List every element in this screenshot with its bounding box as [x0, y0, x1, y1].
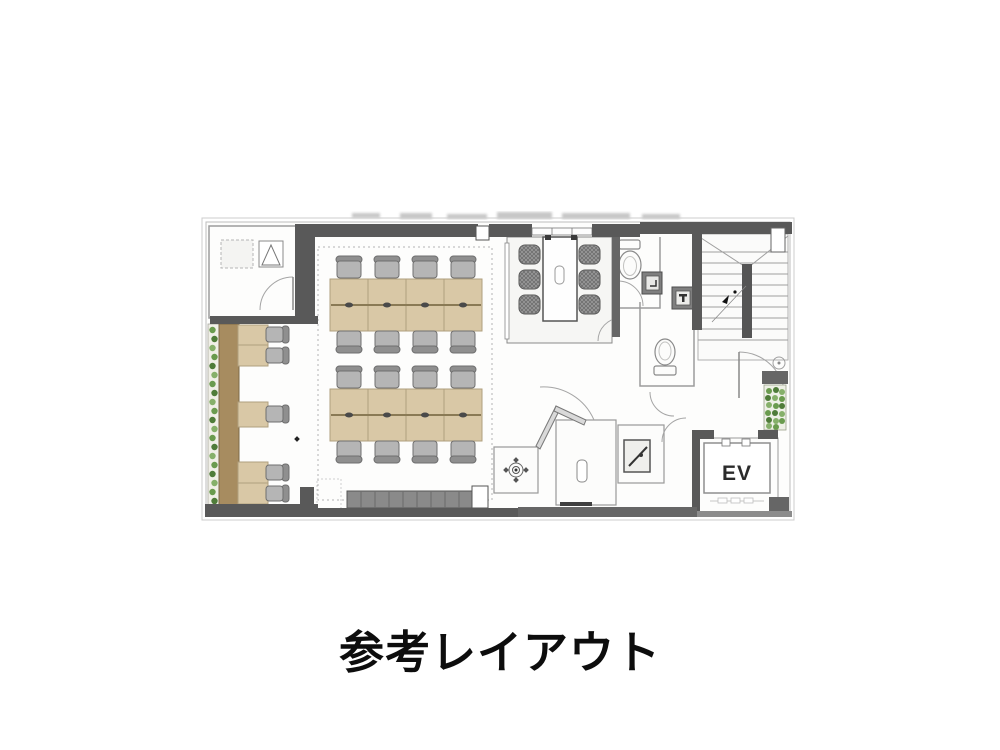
counter-desk [238, 325, 289, 345]
office-chair [412, 441, 438, 463]
office-chair [450, 441, 476, 463]
shower-room [556, 420, 616, 506]
meeting-chair [519, 245, 540, 264]
counter-desk [238, 462, 289, 483]
toilet-icon [655, 339, 675, 365]
threshold [560, 502, 592, 506]
storage-area [221, 240, 253, 268]
utility-room [618, 425, 664, 483]
office-chair [450, 366, 476, 388]
glass-front [532, 228, 592, 235]
column [476, 226, 489, 240]
counter-desk [238, 345, 289, 366]
stair-stringer [742, 264, 752, 338]
planter-strip-left [208, 324, 219, 514]
office-chair [336, 441, 362, 463]
toilet-tank [654, 366, 676, 375]
glass-wall [505, 243, 509, 339]
meeting-chair [579, 245, 600, 264]
water-heater [672, 287, 694, 309]
office-chair [450, 256, 476, 278]
washbasin [642, 272, 662, 294]
column [771, 228, 785, 252]
meeting-chair [579, 295, 600, 314]
counter-desk [238, 483, 289, 504]
bench-lockers [347, 491, 473, 508]
office-chair [336, 331, 362, 353]
screenshot-root: EV [0, 0, 1000, 750]
ev-label: EV [722, 462, 752, 485]
fixture-icon [577, 460, 587, 482]
meeting-chair [519, 270, 540, 289]
meeting-chair [579, 270, 600, 289]
office-chair [412, 256, 438, 278]
office-chair [374, 331, 400, 353]
office-chair [374, 441, 400, 463]
office-chair [374, 256, 400, 278]
office-chair [450, 331, 476, 353]
office-chair [412, 366, 438, 388]
meeting-table [543, 237, 577, 321]
elevator: EV [692, 430, 789, 515]
planter-strip-right [762, 371, 788, 430]
column [472, 486, 488, 508]
office-chair [336, 366, 362, 388]
toilet-tank [619, 240, 640, 249]
meeting-chair [519, 295, 540, 314]
office-chair [374, 366, 400, 388]
wall-counter [219, 324, 239, 514]
toilet-icon [619, 251, 641, 279]
counter-seating [238, 325, 289, 504]
caption: 参考レイアウト [0, 616, 1000, 681]
office-chair [412, 331, 438, 353]
pantry-room [494, 447, 538, 493]
meeting-room [505, 237, 620, 343]
office-chair [336, 256, 362, 278]
